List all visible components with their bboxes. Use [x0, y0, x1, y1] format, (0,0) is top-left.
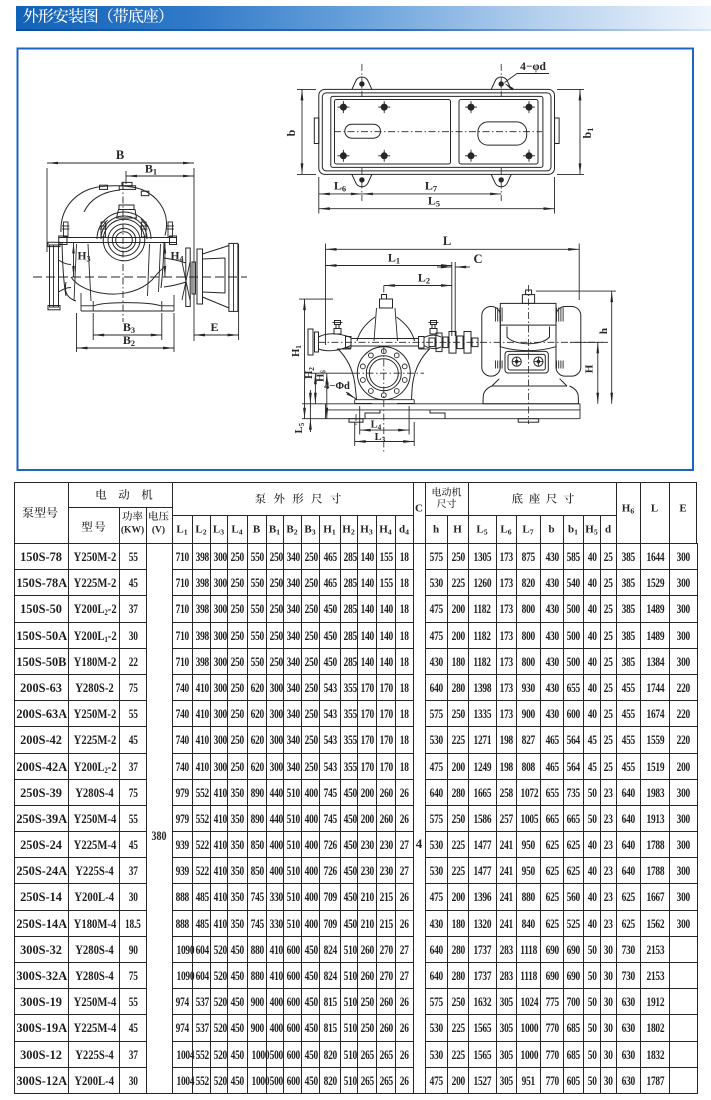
- svg-text:B2: B2: [286, 524, 297, 537]
- svg-text:H6: H6: [622, 503, 635, 516]
- svg-text:(V): (V): [152, 525, 165, 536]
- svg-text:b: b: [284, 129, 298, 136]
- svg-text:L6: L6: [500, 524, 511, 537]
- svg-text:h: h: [598, 328, 610, 334]
- svg-text:H3: H3: [360, 524, 373, 537]
- svg-text:b: b: [548, 524, 554, 536]
- svg-text:(KW): (KW): [121, 525, 144, 536]
- svg-text:L: L: [443, 234, 451, 248]
- svg-text:L: L: [651, 503, 658, 515]
- svg-text:L7: L7: [522, 524, 533, 537]
- svg-text:H: H: [584, 364, 596, 373]
- svg-text:4−Φd: 4−Φd: [324, 381, 350, 392]
- svg-text:4: 4: [416, 836, 423, 851]
- svg-text:H1: H1: [323, 524, 336, 537]
- svg-text:B3: B3: [304, 524, 315, 537]
- svg-text:H5: H5: [585, 524, 598, 537]
- svg-text:h: h: [433, 524, 439, 536]
- svg-text:L3: L3: [213, 524, 224, 537]
- svg-text:380: 380: [152, 828, 167, 843]
- svg-text:H: H: [453, 524, 462, 536]
- svg-text:H4: H4: [379, 524, 392, 537]
- svg-text:L5: L5: [476, 524, 487, 537]
- svg-text:L1: L1: [176, 524, 187, 537]
- svg-text:E: E: [210, 320, 218, 334]
- svg-text:E: E: [679, 503, 686, 515]
- svg-text:B: B: [253, 524, 261, 536]
- svg-text:B1: B1: [269, 524, 280, 537]
- svg-text:H2: H2: [342, 524, 355, 537]
- svg-text:d4: d4: [399, 524, 409, 537]
- svg-text:4−φd: 4−φd: [520, 61, 546, 73]
- svg-text:B: B: [116, 148, 124, 162]
- svg-text:L2: L2: [195, 524, 206, 537]
- svg-text:C: C: [473, 252, 482, 266]
- svg-text:b1: b1: [568, 524, 578, 537]
- svg-text:d: d: [605, 524, 611, 536]
- svg-text:C: C: [415, 503, 423, 515]
- svg-text:L4: L4: [231, 524, 242, 537]
